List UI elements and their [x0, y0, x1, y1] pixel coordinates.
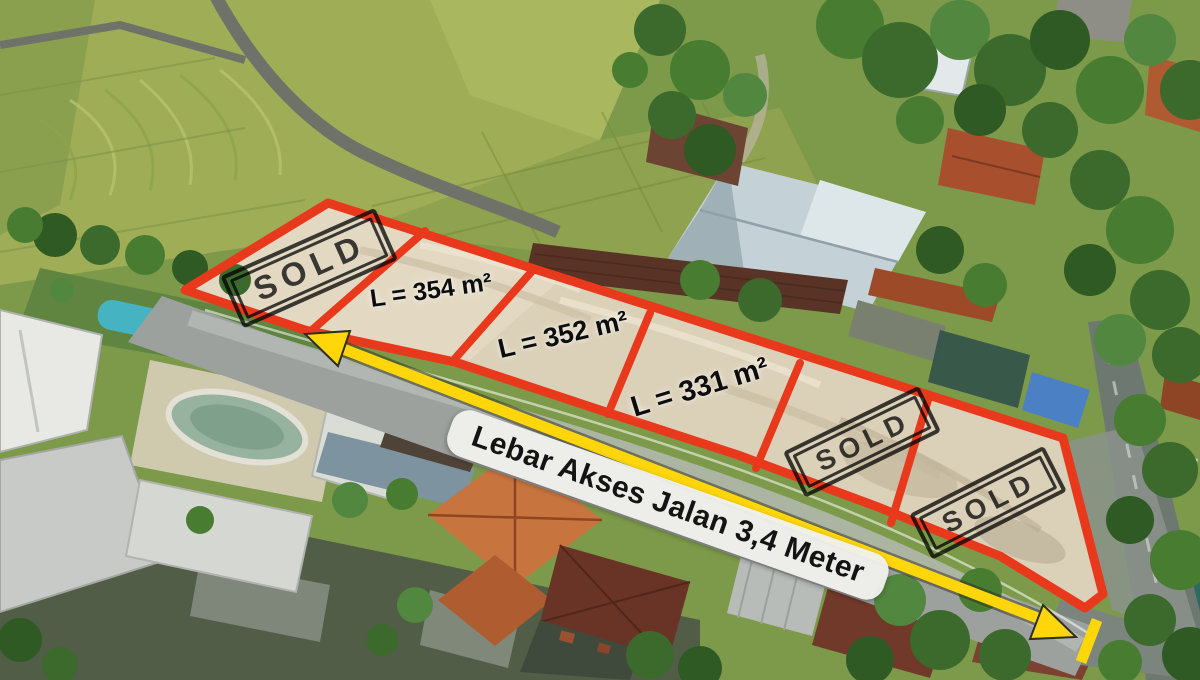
- aerial-property-photo: SOLD L = 354 m² L = 352 m² L = 331 m² SO…: [0, 0, 1200, 680]
- blue-tarp: [1022, 372, 1090, 428]
